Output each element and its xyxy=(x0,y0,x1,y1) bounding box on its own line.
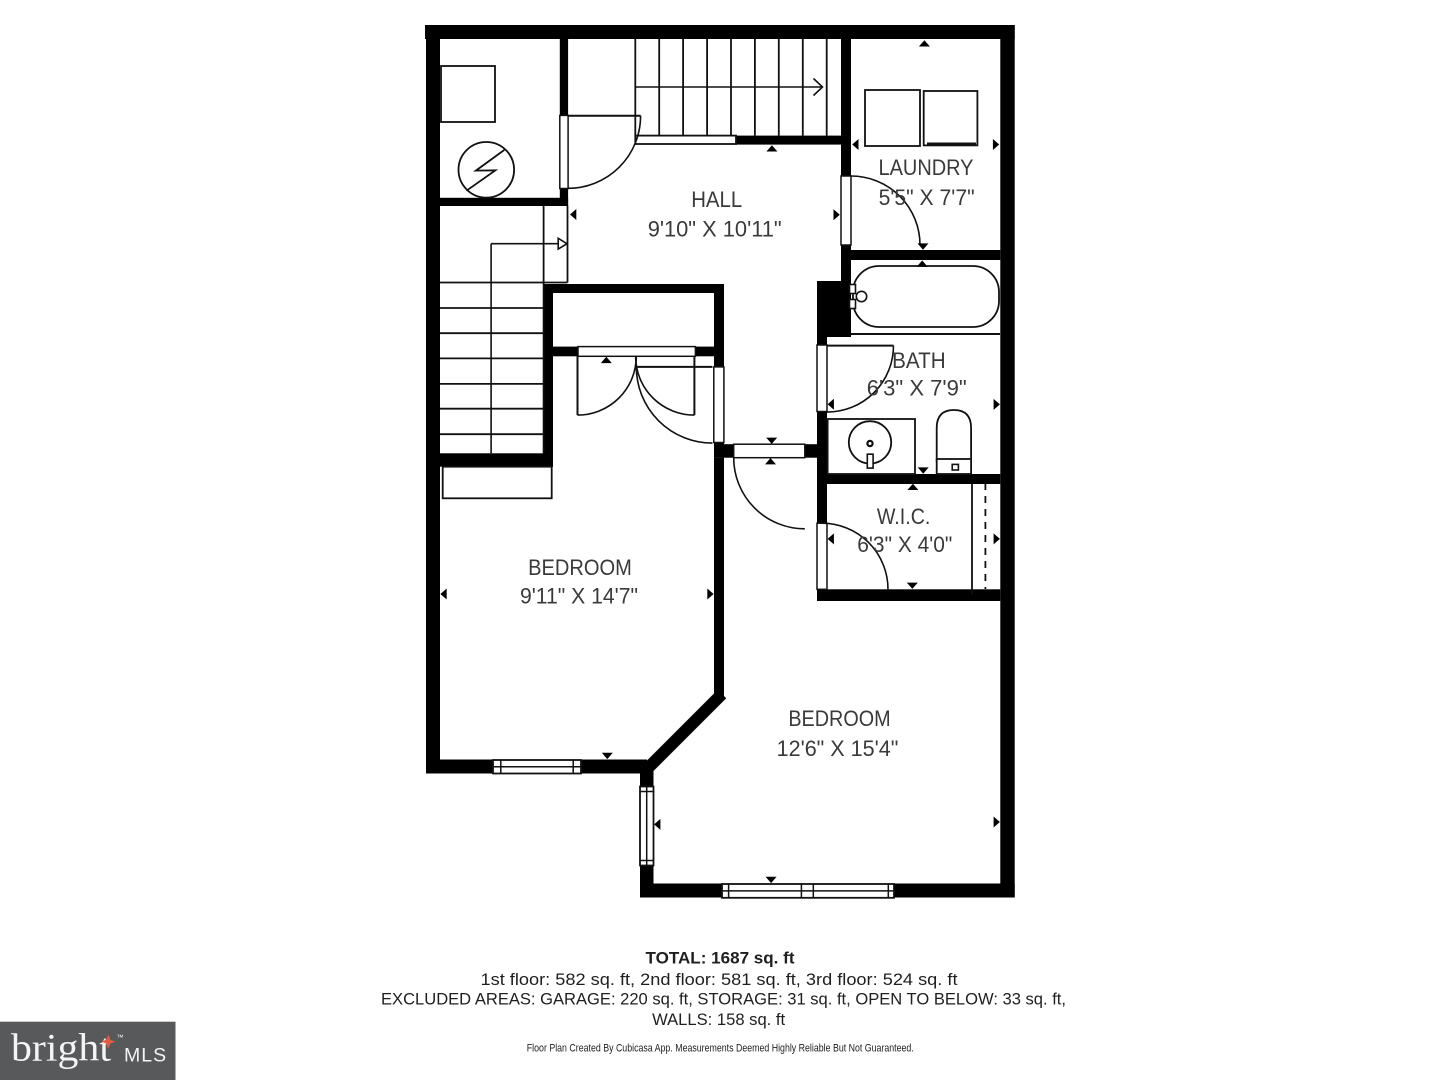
svg-text:BEDROOM: BEDROOM xyxy=(528,555,632,580)
svg-text:1st floor: 582 sq. ft, 2nd flo: 1st floor: 582 sq. ft, 2nd floor: 581 sq… xyxy=(481,970,958,989)
svg-text:HALL: HALL xyxy=(691,187,742,212)
svg-text:LAUNDRY: LAUNDRY xyxy=(879,155,974,180)
svg-text:W.I.C.: W.I.C. xyxy=(877,504,931,529)
svg-text:5'5" X 7'7": 5'5" X 7'7" xyxy=(879,185,975,210)
svg-text:TOTAL: 1687 sq. ft: TOTAL: 1687 sq. ft xyxy=(646,949,795,968)
svg-text:BATH: BATH xyxy=(892,348,946,373)
svg-text:MLS: MLS xyxy=(124,1045,167,1067)
svg-text:6'3" X 7'9": 6'3" X 7'9" xyxy=(867,376,967,401)
svg-text:9'10" X 10'11": 9'10" X 10'11" xyxy=(648,216,782,241)
svg-text:6'3" X 4'0": 6'3" X 4'0" xyxy=(857,532,952,557)
svg-text:12'6" X 15'4": 12'6" X 15'4" xyxy=(777,736,899,761)
svg-text:bright: bright xyxy=(11,1027,111,1070)
svg-text:Floor Plan Created By Cubicasa: Floor Plan Created By Cubicasa App. Meas… xyxy=(527,1042,914,1054)
svg-text:EXCLUDED AREAS: GARAGE: 220 sq: EXCLUDED AREAS: GARAGE: 220 sq. ft, STOR… xyxy=(381,990,1066,1009)
svg-text:BEDROOM: BEDROOM xyxy=(788,706,890,731)
svg-text:WALLS: 158 sq. ft: WALLS: 158 sq. ft xyxy=(652,1010,785,1029)
svg-text:9'11" X 14'7": 9'11" X 14'7" xyxy=(520,584,638,609)
svg-text:™: ™ xyxy=(117,1035,124,1042)
